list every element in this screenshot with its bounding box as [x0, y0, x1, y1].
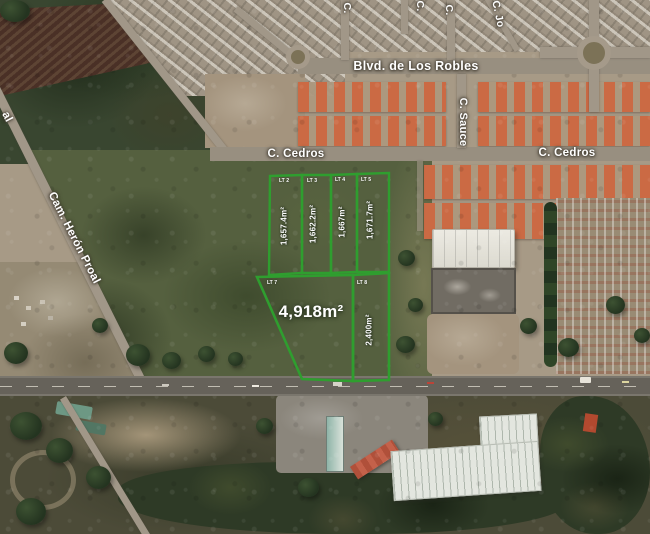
parcel-area-label: 1,662.2m²	[309, 205, 318, 243]
parcel-area-label: 1,667m²	[338, 206, 347, 237]
parcel-area-label: 1,671.7m²	[366, 201, 375, 239]
parcel-id-label: LT 4	[335, 177, 345, 182]
street-label-cedros-right: C. Cedros	[538, 147, 595, 159]
parcel-area-label: 1,657.4m²	[280, 207, 289, 245]
parcel-id-label: LT 3	[307, 178, 317, 183]
parcel-area-label-large: 4,918m²	[279, 302, 344, 322]
street-label-top-partial: C.	[414, 0, 426, 11]
street-label-top-partial: C.	[443, 4, 455, 15]
street-label-sauce: C. Sauce	[457, 98, 469, 147]
parcel-id-label: LT 5	[361, 177, 371, 182]
parcel-area-label: 2,400m²	[365, 314, 374, 345]
street-label-cedros-left: C. Cedros	[267, 148, 324, 160]
parcel-overlay	[0, 0, 650, 534]
parcel-id-label: LT 7	[267, 280, 277, 285]
parcel-id-label: LT 8	[357, 280, 367, 285]
satellite-map[interactable]: LT 2 LT 3 LT 4 LT 5 LT 7 LT 8 1,657.4m² …	[0, 0, 650, 534]
street-label-top-partial: C.	[341, 2, 353, 13]
parcel-lt7-outline	[257, 275, 353, 381]
street-label-blvd-robles: Blvd. de Los Robles	[353, 59, 478, 73]
parcel-id-label: LT 2	[279, 178, 289, 183]
